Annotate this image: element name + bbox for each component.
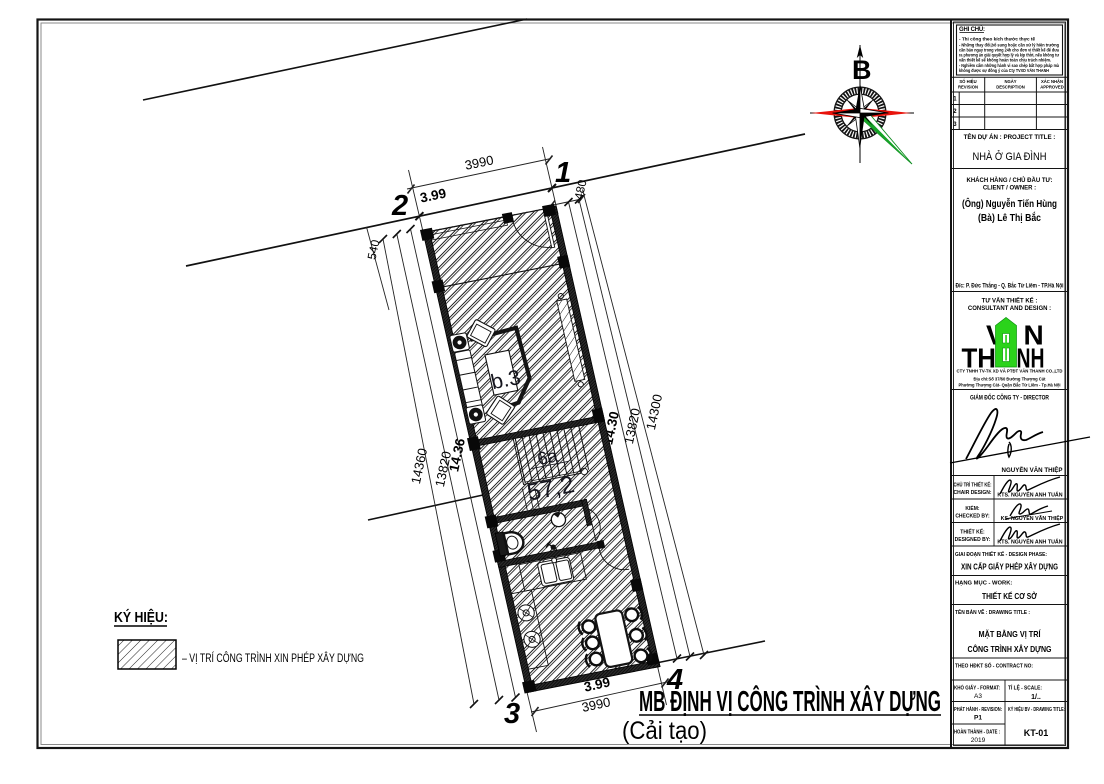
svg-text:CLIENT / OWNER :: CLIENT / OWNER : <box>983 186 1036 192</box>
svg-text:KÝ HIỆU BV - DRAWING TITLE:: KÝ HIỆU BV - DRAWING TITLE: <box>1008 705 1065 713</box>
svg-text:XIN CẤP GIẤY PHÉP XÂY DỰNG: XIN CẤP GIẤY PHÉP XÂY DỰNG <box>961 562 1058 572</box>
svg-text:MẶT BẰNG VỊ TRÍ: MẶT BẰNG VỊ TRÍ <box>979 628 1042 639</box>
svg-text:THIẾT KẾ:: THIẾT KẾ: <box>960 529 985 536</box>
svg-text:DESCRIPTION: DESCRIPTION <box>996 85 1025 90</box>
svg-text:CHỦ TRÌ THIẾT KẾ:: CHỦ TRÌ THIẾT KẾ: <box>954 481 992 489</box>
svg-text:P1: P1 <box>974 715 982 722</box>
svg-text:(Bà) Lê Thị Bắc: (Bà) Lê Thị Bắc <box>978 211 1041 224</box>
svg-text:(Ông) Nguyễn Tiến Hùng: (Ông) Nguyễn Tiến Hùng <box>962 197 1057 210</box>
svg-text:KT-01: KT-01 <box>1024 728 1049 738</box>
svg-text:Phường Thượng Cát- Quận Bắc Từ: Phường Thượng Cát- Quận Bắc Từ Liêm - Tp… <box>959 382 1061 388</box>
svg-text:KÝ HIỆU:: KÝ HIỆU: <box>114 608 168 626</box>
svg-text:CÔNG TRÌNH XÂY DỰNG: CÔNG TRÌNH XÂY DỰNG <box>968 643 1052 654</box>
svg-text:TÊN DỰ ÁN : PROJECT TITLE :: TÊN DỰ ÁN : PROJECT TITLE : <box>964 133 1056 141</box>
svg-text:NGÀY: NGÀY <box>1004 79 1016 84</box>
svg-text:KS. NGUYỄN VĂN THIỆP: KS. NGUYỄN VĂN THIỆP <box>1001 514 1064 522</box>
svg-text:HOÀN THÀNH - DATE :: HOÀN THÀNH - DATE : <box>954 729 1000 736</box>
svg-text:1: 1 <box>555 157 571 189</box>
svg-text:KTS. NGUYỄN ANH TUẤN: KTS. NGUYỄN ANH TUẤN <box>997 539 1062 546</box>
svg-text:3: 3 <box>504 698 520 730</box>
svg-text:TƯ VẤN THIẾT KẾ :: TƯ VẤN THIẾT KẾ : <box>982 298 1038 305</box>
svg-text:2019: 2019 <box>971 737 986 744</box>
svg-text:2: 2 <box>391 190 408 222</box>
svg-text:Địa chỉ:Số 37/60 Đường Thượng: Địa chỉ:Số 37/60 Đường Thượng Cát <box>974 376 1046 382</box>
svg-text:HẠNG MỤC - WORK:: HẠNG MỤC - WORK: <box>955 581 1012 587</box>
svg-text:SỐ HIỆU: SỐ HIỆU <box>959 79 976 84</box>
svg-text:PHÁT HÀNH - REVISION:: PHÁT HÀNH - REVISION: <box>954 706 1002 713</box>
svg-text:CHECKED BY:: CHECKED BY: <box>955 514 990 520</box>
svg-text:A3: A3 <box>974 693 982 700</box>
svg-text:KIỂM:: KIỂM: <box>965 505 980 512</box>
svg-text:TỈ LỆ - SCALE:: TỈ LỆ - SCALE: <box>1008 684 1042 692</box>
svg-text:NHÀ Ở GIA ĐÌNH: NHÀ Ở GIA ĐÌNH <box>973 150 1047 163</box>
svg-text:- Thi công theo kích thước thự: - Thi công theo kích thước thực tế <box>959 36 1035 42</box>
svg-text:(Cải tạo): (Cải tạo) <box>622 717 707 745</box>
svg-text:Đ/c: P. Đức Thắng - Q. Bắc Từ: Đ/c: P. Đức Thắng - Q. Bắc Từ Liêm - TP.… <box>956 283 1064 290</box>
svg-text:GIAI ĐOẠN THIẾT KẾ - DESIGN PH: GIAI ĐOẠN THIẾT KẾ - DESIGN PHASE: <box>955 551 1047 558</box>
svg-text:CTY TNHH TV-TK XD VÀ PTĐT VĂN: CTY TNHH TV-TK XD VÀ PTĐT VĂN THANH CO.,… <box>957 368 1064 374</box>
svg-text:MB ĐỊNH VỊ CÔNG TRÌNH XÂY DỰNG: MB ĐỊNH VỊ CÔNG TRÌNH XÂY DỰNG <box>639 685 941 718</box>
svg-text:CHAIR DESIGN:: CHAIR DESIGN: <box>953 490 991 496</box>
svg-text:B: B <box>852 55 872 85</box>
svg-text:không được sự đồng ý của Cty T: không được sự đồng ý của Cty TVXD VĂN TH… <box>959 67 1050 73</box>
svg-text:THEO HĐKT SỐ - CONTRACT NO:: THEO HĐKT SỐ - CONTRACT NO: <box>955 663 1033 670</box>
svg-text:KHỔ GIẤY - FORMAT:: KHỔ GIẤY - FORMAT: <box>954 685 1000 692</box>
svg-text:– VỊ TRÍ CÔNG TRÌNH XIN PHÉP X: – VỊ TRÍ CÔNG TRÌNH XIN PHÉP XÂY DỰNG <box>182 652 364 665</box>
svg-text:THIẾT KẾ CƠ SỞ: THIẾT KẾ CƠ SỞ <box>982 590 1038 601</box>
svg-text:KHÁCH HÀNG / CHỦ ĐẦU TƯ:: KHÁCH HÀNG / CHỦ ĐẦU TƯ: <box>967 177 1053 184</box>
svg-text:TÊN BẢN VẼ : DRAWING TITLE :: TÊN BẢN VẼ : DRAWING TITLE : <box>955 608 1030 616</box>
svg-text:GHI CHÚ:: GHI CHÚ: <box>959 26 985 33</box>
svg-text:REVISION: REVISION <box>958 85 978 90</box>
svg-text:NGUYỄN VĂN THIỆP: NGUYỄN VĂN THIỆP <box>1002 465 1064 474</box>
svg-text:CONSULTANT AND DESIGN :: CONSULTANT AND DESIGN : <box>968 306 1051 312</box>
svg-text:APPROVED: APPROVED <box>1040 85 1064 90</box>
svg-text:KTS. NGUYỄN ANH TUẤN: KTS. NGUYỄN ANH TUẤN <box>997 492 1062 499</box>
svg-text:vấn thiết kế sẽ không hoàn toà: vấn thiết kế sẽ không hoàn toàn chịu trá… <box>959 57 1051 63</box>
svg-text:XÁC NHẬN: XÁC NHẬN <box>1041 79 1063 84</box>
svg-text:1/..: 1/.. <box>1031 694 1041 701</box>
svg-text:DESIGNED BY:: DESIGNED BY: <box>955 537 991 543</box>
